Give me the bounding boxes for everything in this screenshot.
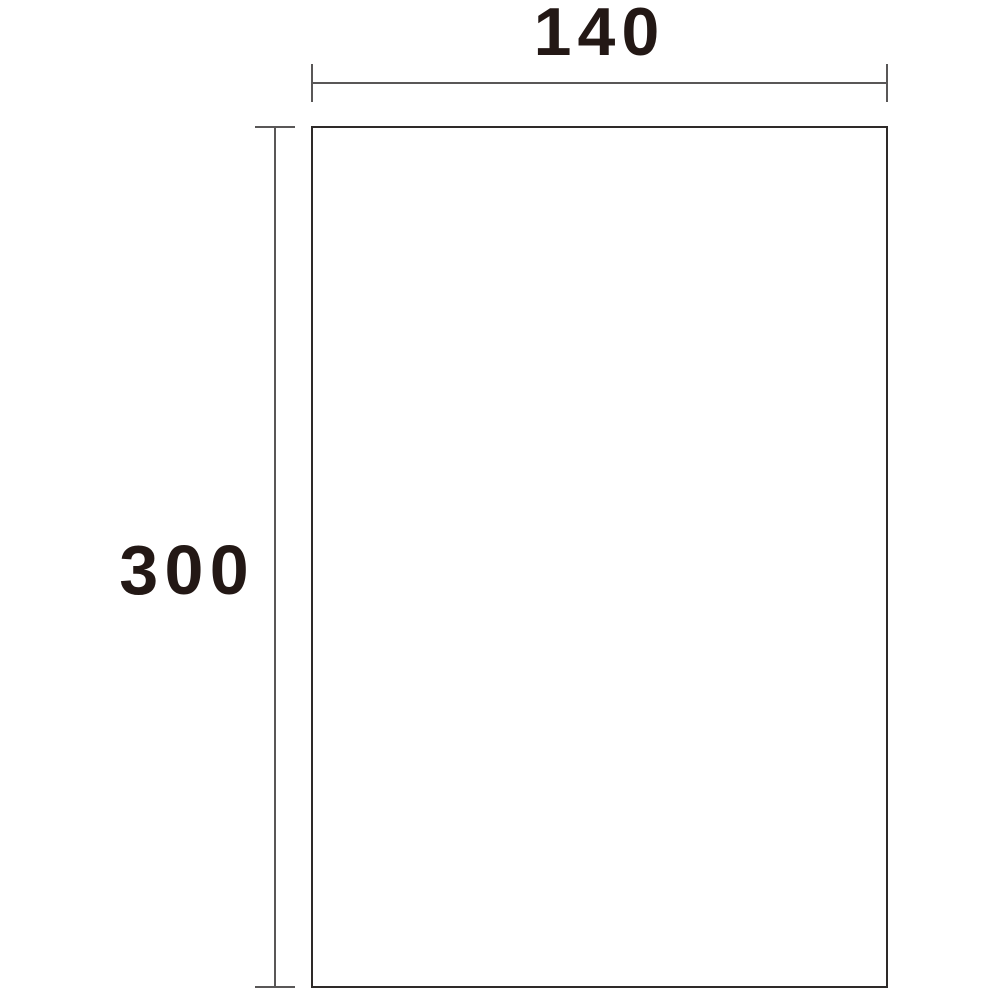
width-dimension-line (311, 82, 888, 84)
height-dimension-bottom-tick (255, 986, 295, 988)
width-dimension-right-tick (886, 64, 888, 102)
height-dimension-top-tick (255, 126, 295, 128)
height-dimension-line (274, 126, 276, 988)
dimension-diagram: 140 300 (0, 0, 1000, 1000)
product-outline-rectangle (311, 126, 888, 988)
width-dimension-left-tick (311, 64, 313, 102)
height-dimension-label: 300 (40, 524, 255, 616)
width-dimension-label: 140 (311, 0, 888, 64)
